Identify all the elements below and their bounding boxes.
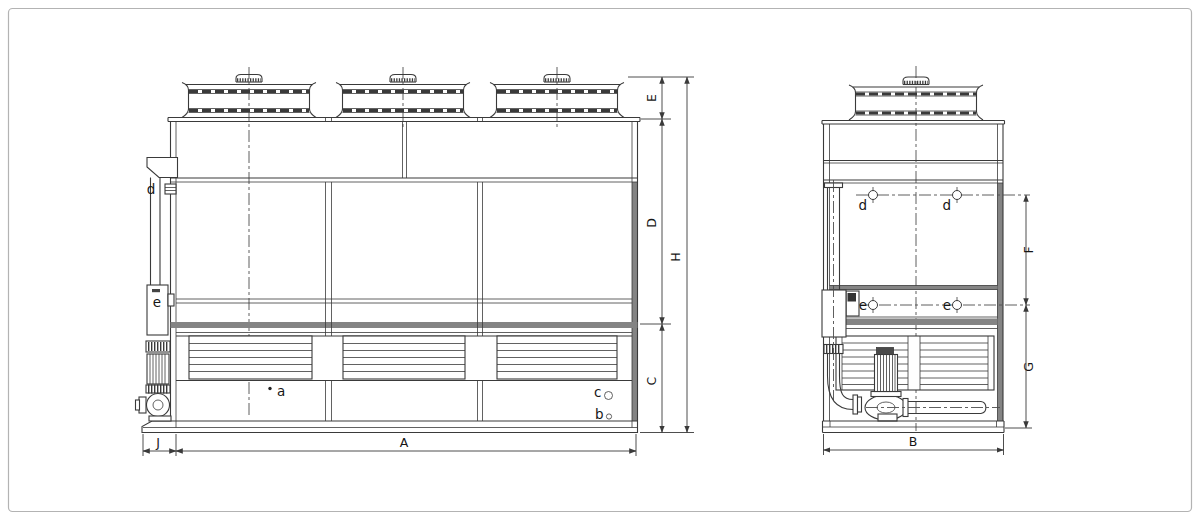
side-top-deck	[822, 121, 1005, 125]
connection-label-e: e	[153, 294, 161, 310]
connection-label-a: a	[277, 383, 285, 399]
side-view: d d e e	[822, 66, 1036, 455]
dim-label-G: G	[1021, 362, 1036, 372]
dim-label-H: H	[668, 252, 683, 261]
cooling-tower-technical-drawing: a c b d e	[0, 0, 1200, 520]
dim-label-A: A	[400, 435, 409, 450]
connection-label-d: d	[147, 181, 156, 197]
side-valve-box	[822, 290, 846, 337]
front-dimensions: E D C H J A	[143, 77, 694, 456]
riser-and-pump: d e	[136, 158, 178, 422]
connection-point-a	[268, 387, 271, 390]
valve-box	[147, 285, 168, 335]
connection-stub-e	[168, 294, 174, 306]
dim-label-J: J	[155, 435, 160, 450]
pump-motor-cap	[877, 348, 894, 355]
connection-label-d-left: d	[858, 197, 867, 213]
side-connections-d: d d	[856, 187, 1030, 213]
pump-assembly-front	[136, 341, 172, 421]
dim-label-F: F	[1021, 246, 1036, 253]
connection-port-d-left	[869, 187, 878, 203]
pump-volute	[147, 394, 170, 417]
control-box-window	[848, 293, 857, 302]
connection-port-d-right	[953, 187, 962, 203]
connection-port-e-right	[953, 297, 962, 313]
dim-label-E: E	[644, 94, 659, 102]
connection-flange-d	[165, 184, 176, 194]
page-border	[9, 9, 1192, 512]
connection-label-b: b	[595, 406, 604, 422]
connection-label-c: c	[594, 384, 601, 400]
water-basin: a c b	[176, 381, 632, 423]
top-deck	[168, 118, 640, 122]
inlet-bracket	[147, 158, 178, 178]
connection-label-e-left: e	[859, 297, 867, 313]
valve-indicator	[152, 289, 160, 292]
side-louver-section	[836, 336, 994, 390]
front-view: a c b d e	[136, 67, 695, 456]
dim-label-C: C	[644, 376, 659, 385]
connection-point-c	[605, 392, 613, 400]
drawing-page: a c b d e	[0, 0, 1200, 520]
base-frame	[142, 421, 638, 433]
connection-label-d-right: d	[942, 197, 951, 213]
connection-point-b	[606, 414, 611, 419]
louver-section	[176, 336, 632, 379]
dim-label-D: D	[644, 218, 659, 228]
side-base-frame	[823, 421, 1005, 433]
connection-label-e-right: e	[943, 297, 951, 313]
connection-port-e-left	[869, 297, 878, 313]
pump-motor-side	[875, 355, 898, 392]
dim-label-B: B	[909, 434, 918, 449]
